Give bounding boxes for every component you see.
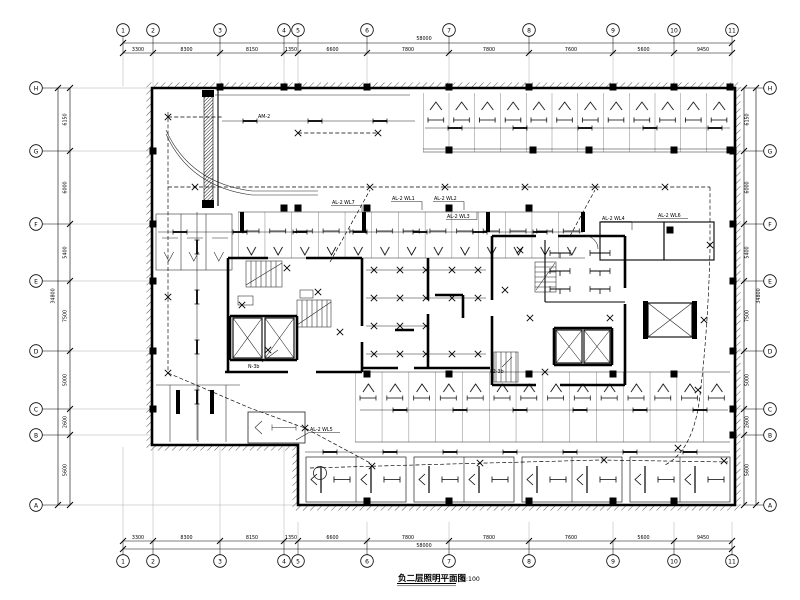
dim-text-top: 9450 xyxy=(697,47,709,53)
dim-text-bottom: 8150 xyxy=(246,535,258,541)
dim-text-top: 8300 xyxy=(180,47,192,53)
total-dim-bottom: 58000 xyxy=(416,543,431,549)
axis-label-right: H xyxy=(768,85,773,92)
dim-text-left: 5000 xyxy=(63,374,69,386)
axis-label-left: C xyxy=(34,406,38,413)
total-dim-left: 34800 xyxy=(51,288,57,303)
axis-label-right: F xyxy=(768,221,772,228)
dim-text-left: 6150 xyxy=(63,113,69,125)
dim-text-bottom: 8300 xyxy=(180,535,192,541)
title-block: 负二层照明平面图 1:100 xyxy=(397,573,480,586)
axis-label-top: 1 xyxy=(121,27,125,34)
axis-label-bottom: 1 xyxy=(121,558,125,565)
axis-label-top: 11 xyxy=(728,27,736,34)
dim-text-right: 6000 xyxy=(745,181,751,193)
dim-text-bottom: 3300 xyxy=(132,535,144,541)
axis-label-bottom: 9 xyxy=(611,558,615,565)
label-n3b: N-3b xyxy=(248,364,259,370)
dim-text-left: 5400 xyxy=(63,246,69,258)
axis-label-top: 4 xyxy=(282,27,286,34)
axis-label-right: D xyxy=(768,348,773,355)
dim-text-bottom: 7800 xyxy=(402,535,414,541)
axis-label-right: B xyxy=(768,432,772,439)
axis-label-right: G xyxy=(768,148,773,155)
axis-label-top: 3 xyxy=(218,27,222,34)
axis-label-right: A xyxy=(768,502,773,509)
axis-label-left: G xyxy=(34,148,39,155)
floor-plan-svg: 5800058000113300330022830083003381508150… xyxy=(0,0,800,600)
parking-top-band xyxy=(423,93,732,152)
dim-text-left: 2600 xyxy=(63,416,69,428)
axis-label-bottom: 4 xyxy=(282,558,286,565)
parking-lower-band xyxy=(355,372,730,442)
axis-label-top: 8 xyxy=(527,27,531,34)
dim-text-top: 8150 xyxy=(246,47,258,53)
axis-label-top: 7 xyxy=(447,27,451,34)
total-dim-top: 58000 xyxy=(416,36,431,42)
dim-text-top: 3300 xyxy=(132,47,144,53)
axis-label-bottom: 6 xyxy=(365,558,369,565)
dim-text-left: 7500 xyxy=(63,310,69,322)
dim-text-top: 1350 xyxy=(285,47,297,53)
axis-label-left: D xyxy=(34,348,39,355)
label-f23b: F2-3b xyxy=(490,369,504,375)
drawing-sheet: 5800058000113300330022830083003381508150… xyxy=(0,0,800,600)
dim-text-right: 2600 xyxy=(745,416,751,428)
dim-text-bottom: 7600 xyxy=(565,535,577,541)
dim-text-top: 7600 xyxy=(565,47,577,53)
dim-text-bottom: 1350 xyxy=(285,535,297,541)
dim-text-left: 5600 xyxy=(63,464,69,476)
dim-text-bottom: 6600 xyxy=(326,535,338,541)
dim-text-left: 6000 xyxy=(63,181,69,193)
dim-text-top: 6600 xyxy=(326,47,338,53)
label-am2: AM-2 xyxy=(258,114,270,120)
axis-label-left: H xyxy=(34,85,39,92)
label-wl2: AL-2 WL2 xyxy=(434,196,457,202)
axis-label-bottom: 3 xyxy=(218,558,222,565)
dim-text-top: 5600 xyxy=(637,47,649,53)
dim-text-top: 7800 xyxy=(483,47,495,53)
axis-label-bottom: 2 xyxy=(151,558,155,565)
dim-text-bottom: 9450 xyxy=(697,535,709,541)
axis-label-left: E xyxy=(34,278,38,285)
axis-label-right: E xyxy=(768,278,772,285)
axis-label-left: B xyxy=(34,432,38,439)
dim-text-top: 7800 xyxy=(402,47,414,53)
axis-label-bottom: 5 xyxy=(296,558,300,565)
dim-text-right: 5600 xyxy=(745,464,751,476)
axis-label-bottom: 11 xyxy=(728,558,736,565)
total-dim-right: 34800 xyxy=(756,288,762,303)
axis-label-bottom: 7 xyxy=(447,558,451,565)
label-wl1: AL-2 WL1 xyxy=(392,196,415,202)
dim-text-right: 5000 xyxy=(745,374,751,386)
axis-label-top: 6 xyxy=(365,27,369,34)
label-wl3: AL-2 WL3 xyxy=(447,214,470,220)
dim-text-bottom: 7800 xyxy=(483,535,495,541)
axis-label-top: 10 xyxy=(670,27,678,34)
label-wl5: AL-2 WL5 xyxy=(310,427,333,433)
drawing-title: 负二层照明平面图 xyxy=(398,573,466,584)
axis-label-top: 2 xyxy=(151,27,155,34)
axis-label-top: 5 xyxy=(296,27,300,34)
label-wl7: AL-2 WL7 xyxy=(332,200,355,206)
drawing-scale: 1:100 xyxy=(462,576,480,583)
label-wl4: AL-2 WL4 xyxy=(602,216,625,222)
dim-text-right: 5400 xyxy=(745,246,751,258)
axis-label-left: A xyxy=(34,502,39,509)
dim-text-right: 6150 xyxy=(745,113,751,125)
dim-text-bottom: 5600 xyxy=(637,535,649,541)
axis-label-right: C xyxy=(768,406,772,413)
axis-label-bottom: 8 xyxy=(527,558,531,565)
axis-label-left: F xyxy=(34,221,38,228)
dim-text-right: 7500 xyxy=(745,310,751,322)
axis-label-bottom: 10 xyxy=(670,558,678,565)
label-wl6: AL-2 WL6 xyxy=(658,213,681,219)
axis-label-top: 9 xyxy=(611,27,615,34)
